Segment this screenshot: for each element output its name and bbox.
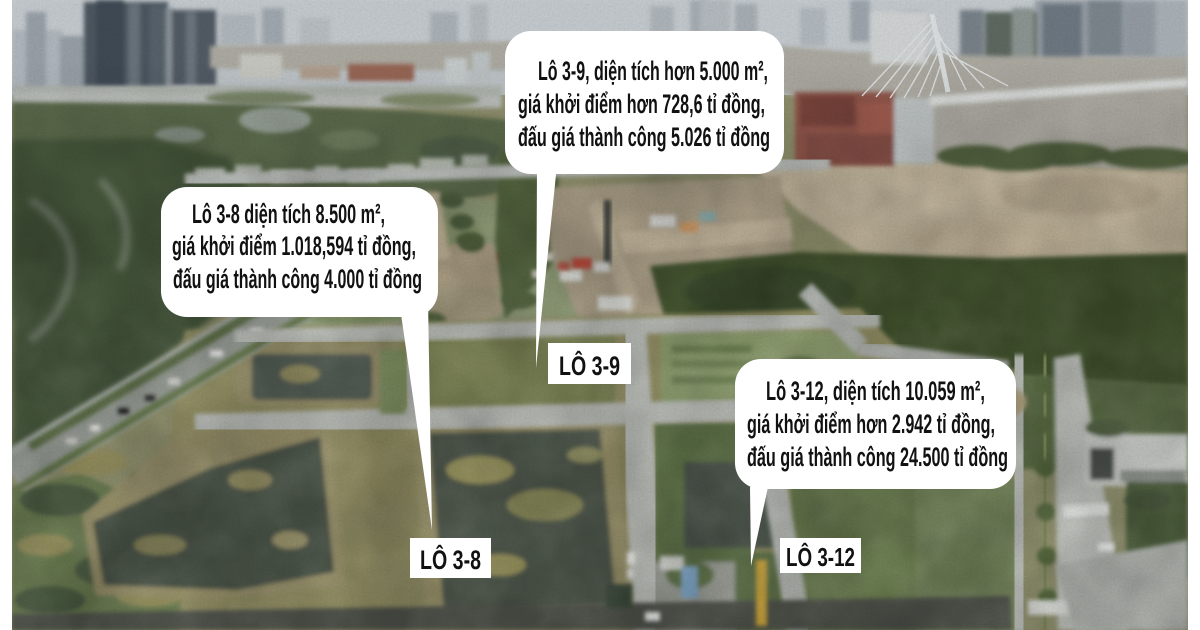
svg-text:đấu giá thành công 24.500 tỉ đ: đấu giá thành công 24.500 tỉ đồng bbox=[747, 442, 1008, 472]
svg-text:Lô 3-9, diện tích hơn 5.000 m²: Lô 3-9, diện tích hơn 5.000 m², bbox=[538, 56, 768, 86]
svg-text:LÔ 3-12: LÔ 3-12 bbox=[786, 542, 855, 572]
svg-text:Lô 3-8 diện tích 8.500 m²,: Lô 3-8 diện tích 8.500 m², bbox=[192, 199, 385, 229]
svg-text:đấu giá thành công 4.000 tỉ đồ: đấu giá thành công 4.000 tỉ đồng bbox=[173, 264, 422, 294]
svg-text:LÔ 3-9: LÔ 3-9 bbox=[559, 350, 620, 381]
svg-text:giá khởi điểm hơn 728,6 tỉ đồn: giá khởi điểm hơn 728,6 tỉ đồng, bbox=[518, 89, 765, 119]
svg-text:LÔ 3-8: LÔ 3-8 bbox=[420, 544, 481, 575]
svg-text:Lô 3-12, diện tích 10.059 m²,: Lô 3-12, diện tích 10.059 m², bbox=[766, 376, 985, 406]
svg-text:giá khởi điểm 1.018,594 tỉ đồn: giá khởi điểm 1.018,594 tỉ đồng, bbox=[172, 231, 416, 261]
svg-text:giá khởi điểm hơn 2.942 tỉ đồn: giá khởi điểm hơn 2.942 tỉ đồng, bbox=[747, 409, 995, 439]
svg-text:đấu giá thành công 5.026 tỉ đồ: đấu giá thành công 5.026 tỉ đồng bbox=[518, 122, 770, 152]
